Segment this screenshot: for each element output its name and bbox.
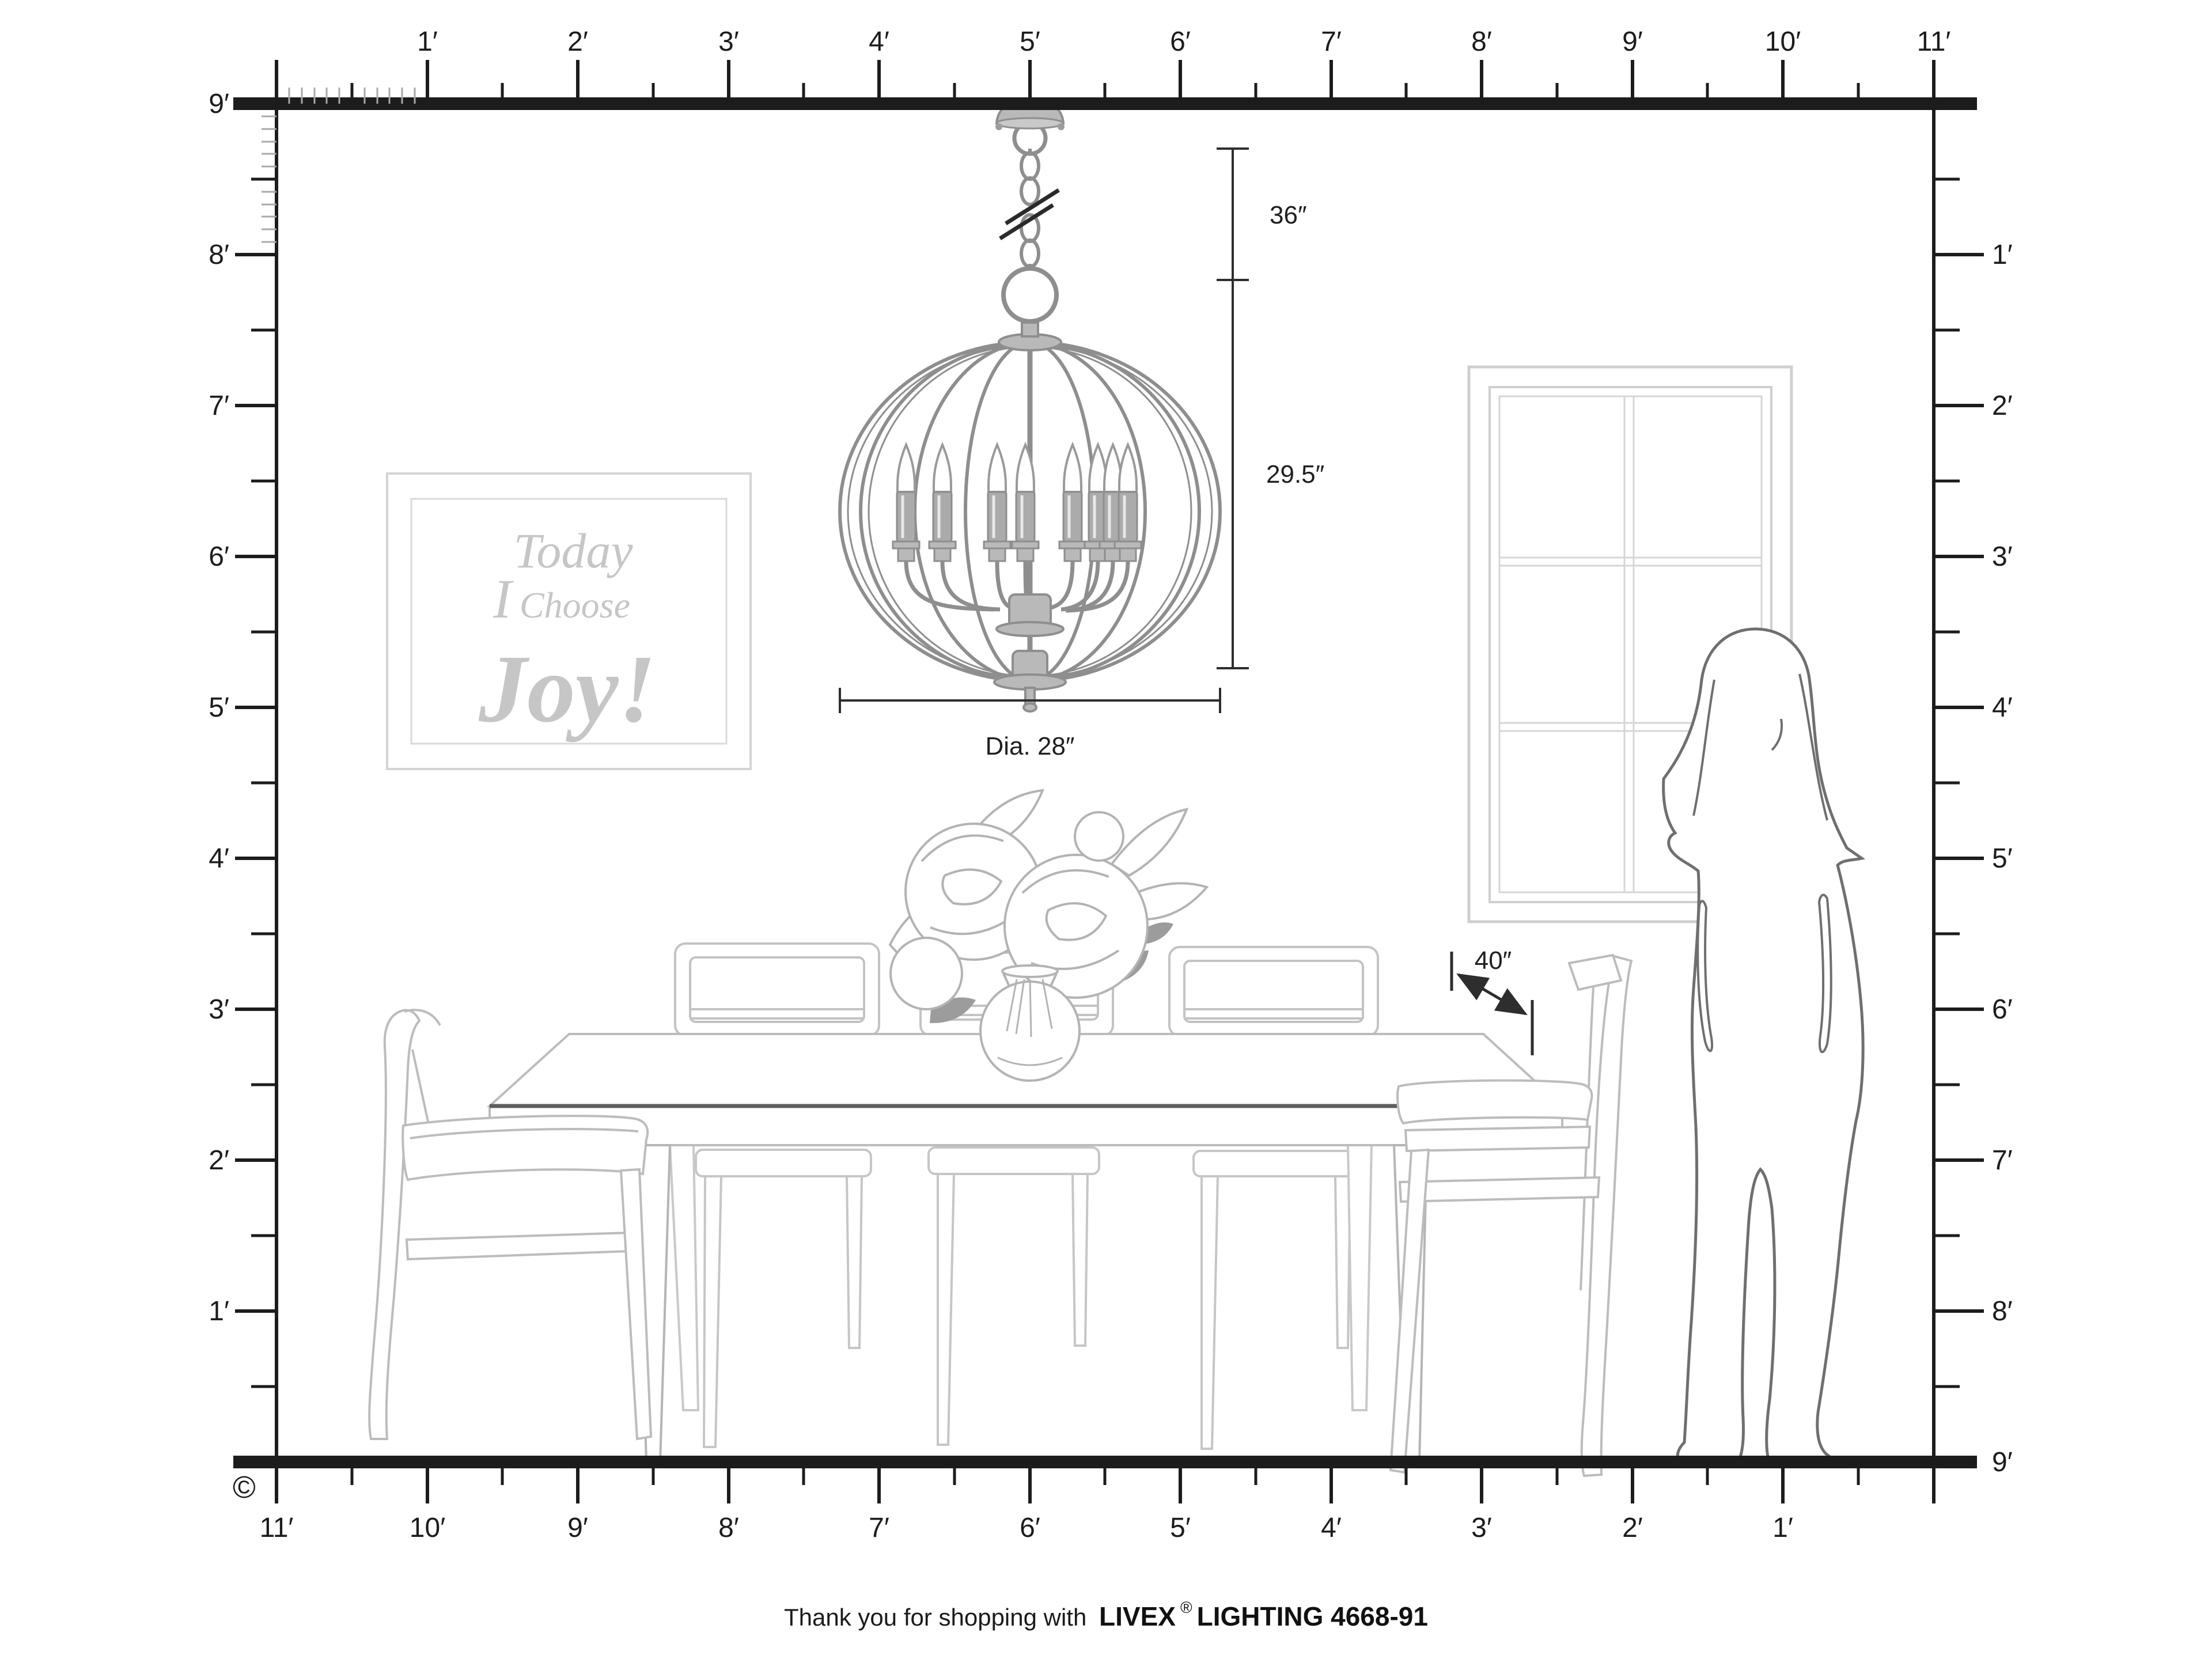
vase-rim — [1002, 965, 1058, 977]
ruler-label: 8′ — [1992, 1296, 2013, 1327]
ruler-label: 2′ — [1622, 1513, 1643, 1543]
back-chair-b-seat — [929, 1147, 1099, 1174]
chain-length-label: 36″ — [1270, 201, 1307, 229]
ruler-label: 4′ — [1992, 692, 2013, 723]
back-chair-a-rear-leg — [847, 1176, 862, 1348]
ruler-label: 3′ — [1992, 541, 2013, 572]
wall-art: Today IChoose Joy! — [387, 474, 751, 769]
canopy-knob-right — [1058, 123, 1065, 130]
ruler-label: 2′ — [209, 1145, 229, 1176]
ruler-label: 7′ — [1321, 26, 1342, 57]
ruler-label: 1′ — [209, 1296, 229, 1327]
ruler-label: 5′ — [1020, 26, 1040, 57]
bottom-finial-tip — [1024, 703, 1036, 711]
left-chair-seat — [403, 1116, 647, 1180]
scale-diagram: Today IChoose Joy! — [0, 0, 2212, 1659]
ruler-label: 9′ — [209, 89, 229, 119]
table-width-label: 40″ — [1475, 946, 1512, 975]
copyright-symbol: © — [233, 1470, 256, 1505]
ruler-label: 4′ — [869, 26, 889, 57]
bloom-small — [891, 938, 962, 1009]
ruler-label: 8′ — [1471, 26, 1492, 57]
ruler-label: 10′ — [410, 1513, 445, 1543]
table-back-right-leg — [1348, 1145, 1372, 1410]
canopy-knob-left — [995, 123, 1002, 130]
top-collar — [1022, 323, 1038, 336]
right-chair-seat — [1397, 1081, 1592, 1123]
ruler-label: 11′ — [1917, 26, 1951, 57]
ruler-label: 5′ — [1992, 843, 2013, 874]
mid-hub-disc — [997, 622, 1063, 636]
ruler-label: 3′ — [718, 26, 739, 57]
art-line1: Today — [513, 523, 633, 578]
ruler-label: 9′ — [1992, 1447, 2013, 1478]
footer-text: Thank you for shopping with LIVEX®LIGHTI… — [784, 1599, 1428, 1631]
right-chair-apron — [1406, 1127, 1590, 1151]
ruler-label: 5′ — [1170, 1513, 1191, 1543]
footer-message: Thank you for shopping with — [784, 1604, 1093, 1631]
ruler-label: 5′ — [209, 692, 229, 723]
ruler-label: 9′ — [1622, 26, 1643, 57]
ruler-label: 6′ — [1020, 1513, 1040, 1543]
ruler-label: 4′ — [209, 843, 229, 874]
bud — [1075, 812, 1123, 861]
right-chair-stretcher — [1400, 1177, 1599, 1202]
ruler-label: 6′ — [1170, 26, 1191, 57]
ruler-label: 2′ — [567, 26, 588, 57]
ruler-label: 6′ — [209, 541, 229, 572]
ruler-label: 8′ — [718, 1513, 739, 1543]
canopy-base — [997, 118, 1063, 128]
art-line2-i: I — [493, 568, 514, 630]
ruler-label: 2′ — [1992, 391, 2013, 421]
back-chair-c-seat — [1194, 1151, 1358, 1176]
back-chair-a-seat — [696, 1150, 871, 1176]
art-line3: Joy! — [478, 635, 656, 743]
fixture-height-label: 29.5″ — [1266, 460, 1324, 488]
ruler-label: 8′ — [209, 240, 229, 270]
back-chair-b-rear-leg — [1073, 1174, 1088, 1346]
ruler-label: 7′ — [209, 391, 229, 421]
ruler-label: 3′ — [209, 994, 229, 1025]
art-line2-choose: Choose — [520, 585, 630, 626]
ruler-label: 1′ — [1772, 1513, 1793, 1543]
ruler-label: 11′ — [260, 1513, 294, 1543]
ruler-label: 7′ — [869, 1513, 889, 1543]
ruler-label: 4′ — [1321, 1513, 1342, 1543]
ruler-label: 1′ — [1992, 240, 2013, 270]
ruler-label: 10′ — [1765, 26, 1801, 57]
ruler-label: 3′ — [1471, 1513, 1492, 1543]
ruler-label: 9′ — [567, 1513, 588, 1543]
footer-brand: LIVEX — [1099, 1601, 1176, 1631]
diagram-page: Today IChoose Joy! — [0, 0, 2212, 1659]
registered-trademark-icon: ® — [1180, 1599, 1192, 1616]
ruler-label: 7′ — [1992, 1145, 2013, 1176]
ruler-label: 1′ — [417, 26, 438, 57]
footer-product: LIGHTING 4668-91 — [1197, 1601, 1428, 1631]
ruler-label: 6′ — [1992, 994, 2013, 1025]
diameter-label: Dia. 28″ — [986, 732, 1075, 760]
